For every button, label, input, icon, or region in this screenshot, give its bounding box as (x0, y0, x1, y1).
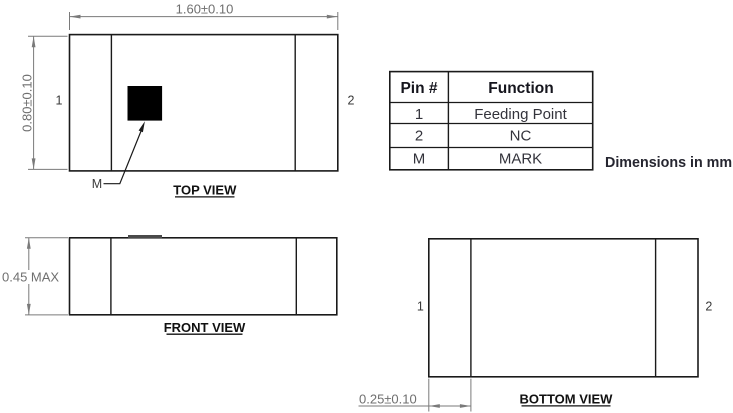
svg-text:0.80±0.10: 0.80±0.10 (20, 74, 35, 132)
svg-text:1: 1 (415, 106, 423, 123)
svg-text:M: M (92, 177, 102, 191)
svg-text:BOTTOM VIEW: BOTTOM VIEW (520, 392, 614, 407)
svg-text:Pin #: Pin # (400, 80, 437, 97)
svg-text:2: 2 (415, 128, 423, 145)
svg-text:0.25±0.10: 0.25±0.10 (359, 392, 417, 407)
svg-text:FRONT VIEW: FRONT VIEW (164, 320, 246, 335)
svg-text:MARK: MARK (499, 151, 542, 168)
svg-text:1: 1 (417, 300, 424, 314)
svg-text:Dimensions in mm: Dimensions in mm (605, 155, 732, 171)
svg-text:1: 1 (56, 94, 63, 108)
svg-text:2: 2 (348, 94, 355, 108)
svg-text:Feeding Point: Feeding Point (474, 106, 567, 123)
svg-text:TOP VIEW: TOP VIEW (173, 183, 237, 198)
svg-text:2: 2 (705, 300, 712, 314)
svg-text:Function: Function (488, 80, 553, 97)
svg-text:M: M (413, 151, 426, 168)
svg-text:0.45 MAX: 0.45 MAX (2, 270, 59, 285)
svg-text:NC: NC (510, 128, 532, 145)
svg-text:1.60±0.10: 1.60±0.10 (176, 2, 234, 17)
